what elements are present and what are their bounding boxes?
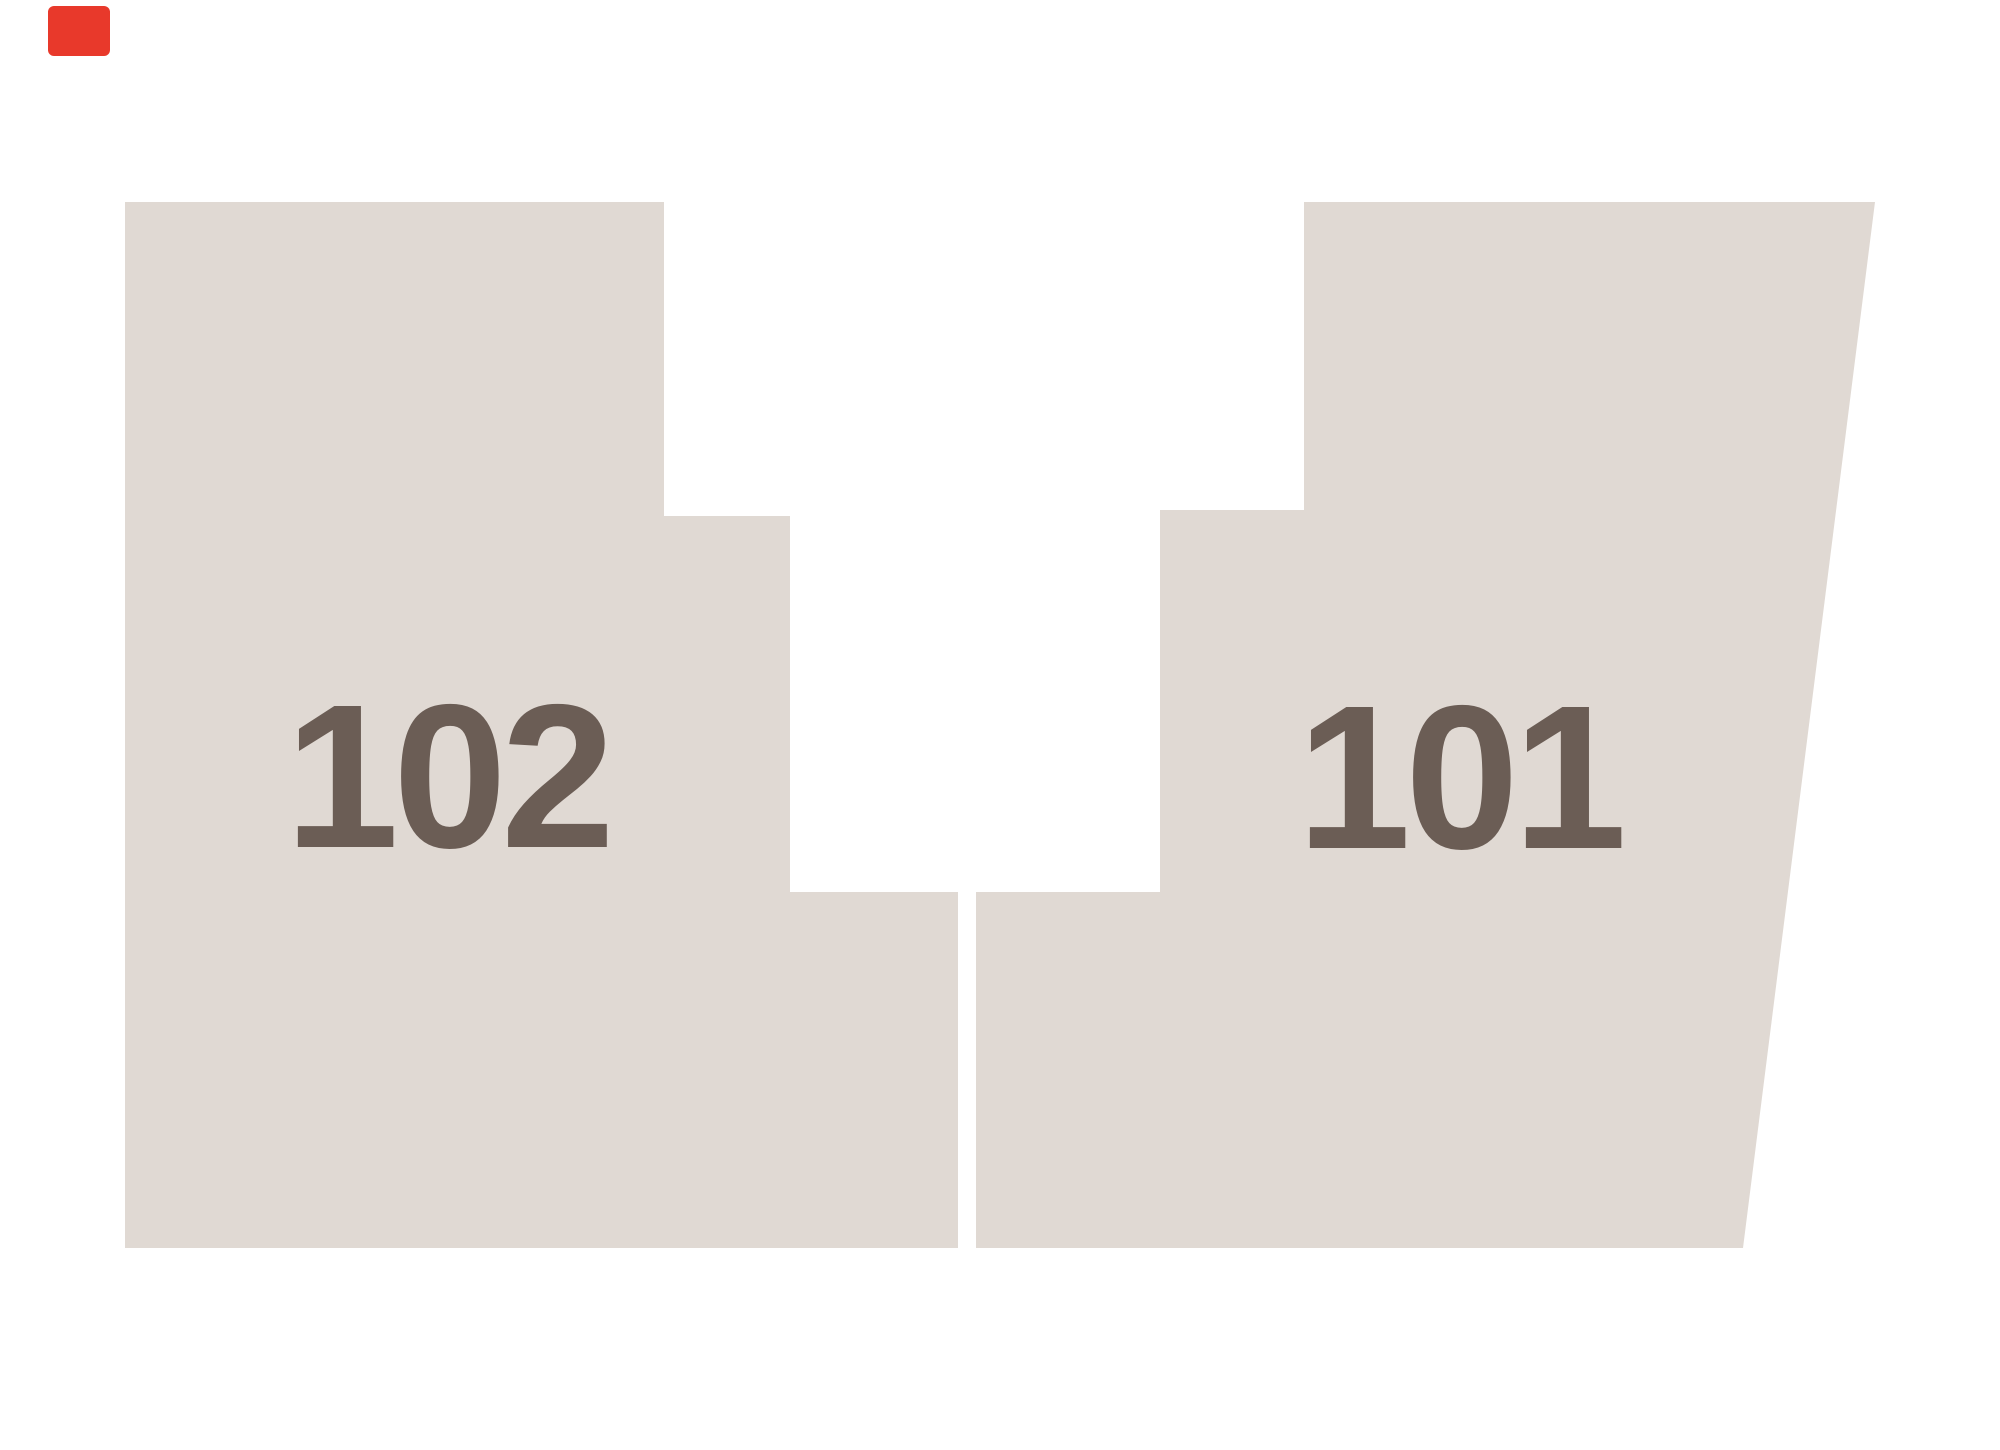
lot-label-102: 102 <box>285 662 609 891</box>
red-marker-icon <box>48 6 110 56</box>
lot-map-page: 102 101 <box>0 0 2000 1450</box>
lot-map: 102 101 <box>0 0 2000 1450</box>
lot-label-101: 101 <box>1297 663 1622 892</box>
